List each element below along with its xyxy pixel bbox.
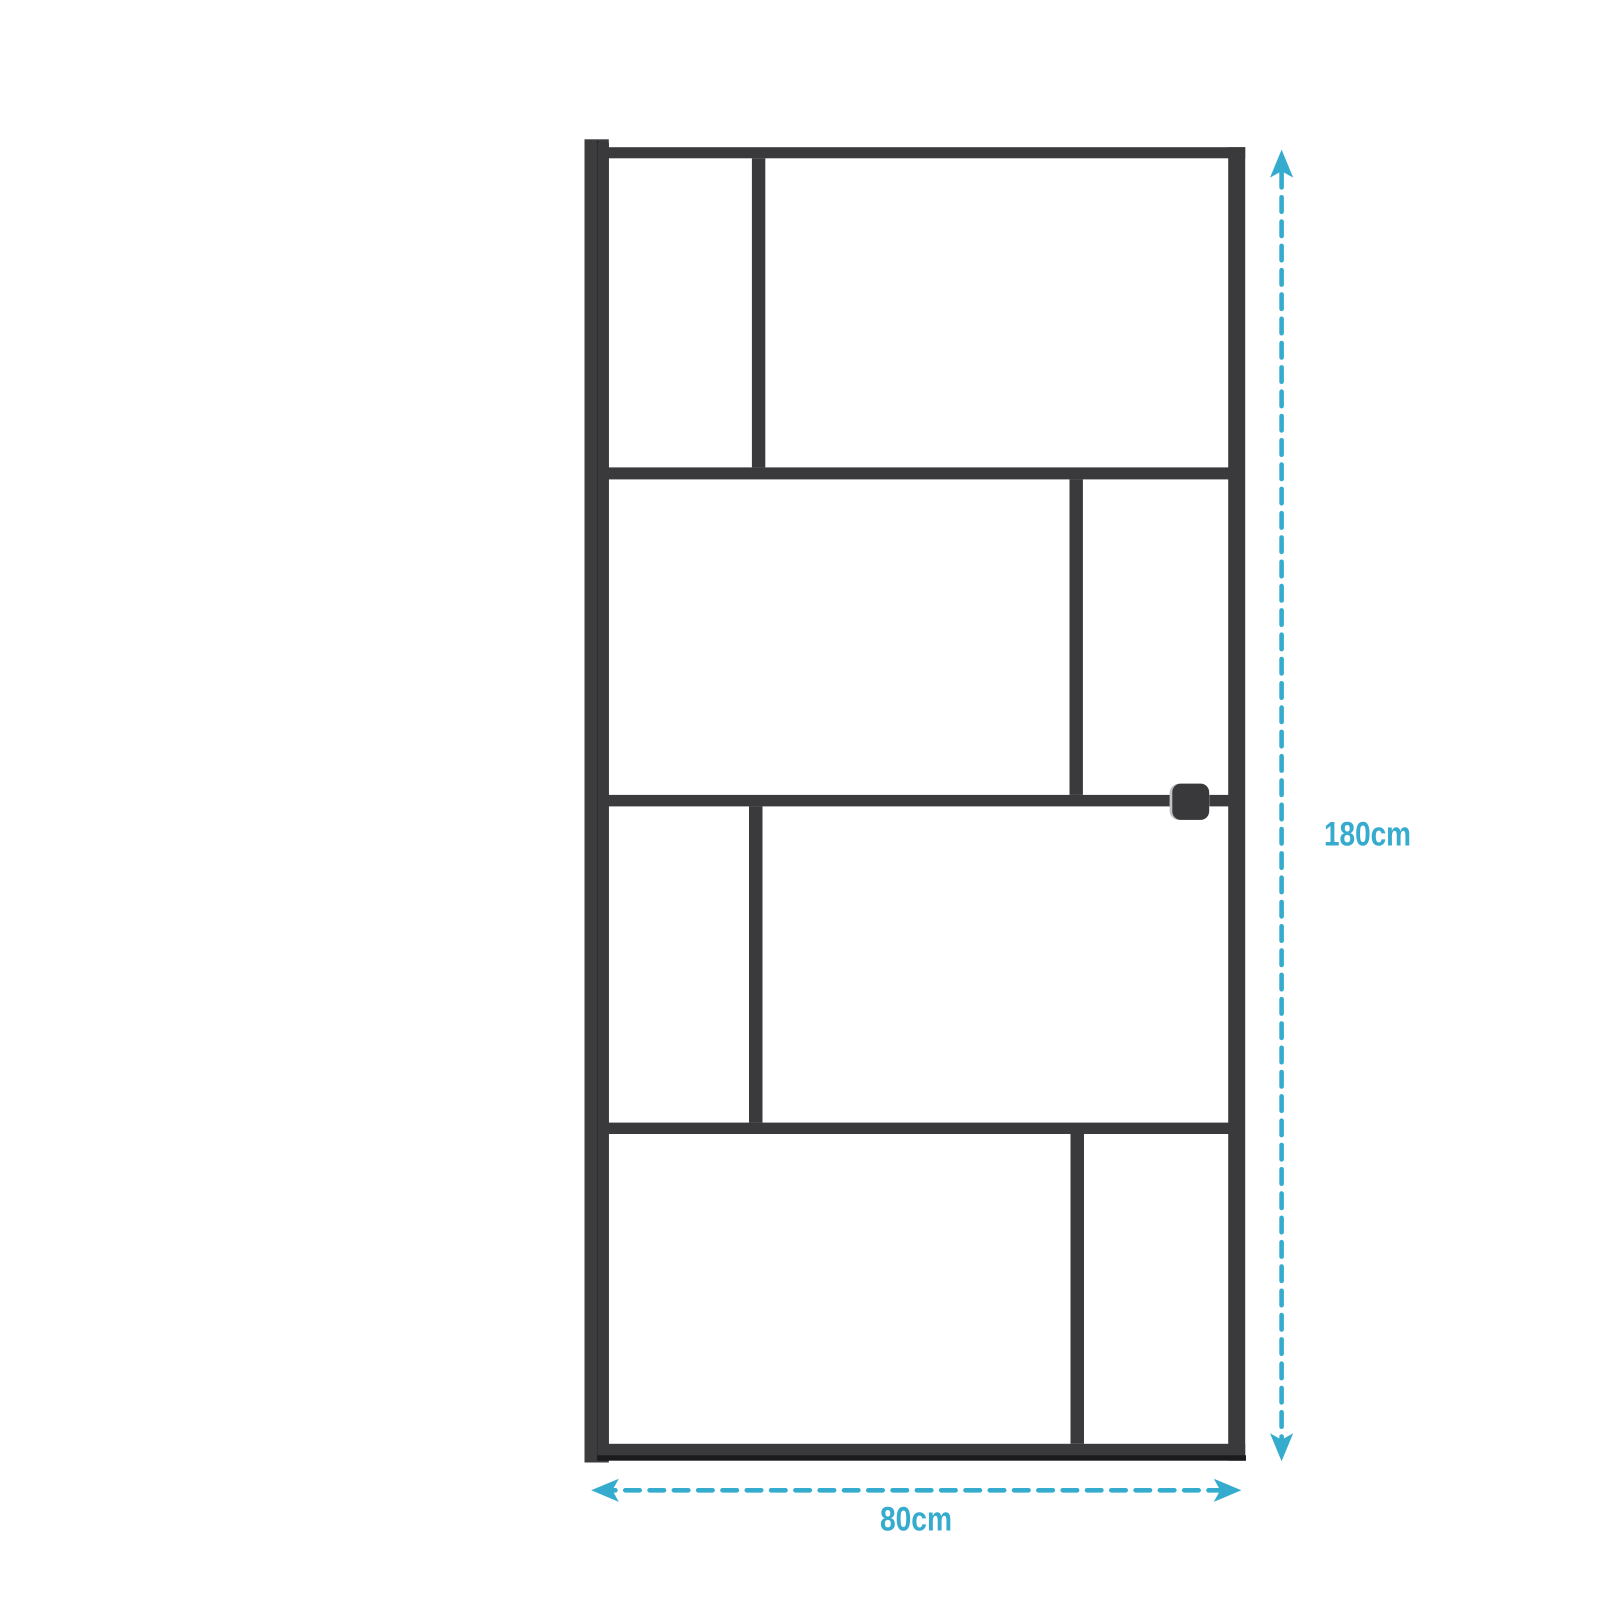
svg-text:80cm: 80cm: [880, 1501, 952, 1539]
svg-text:180cm: 180cm: [1324, 816, 1411, 854]
